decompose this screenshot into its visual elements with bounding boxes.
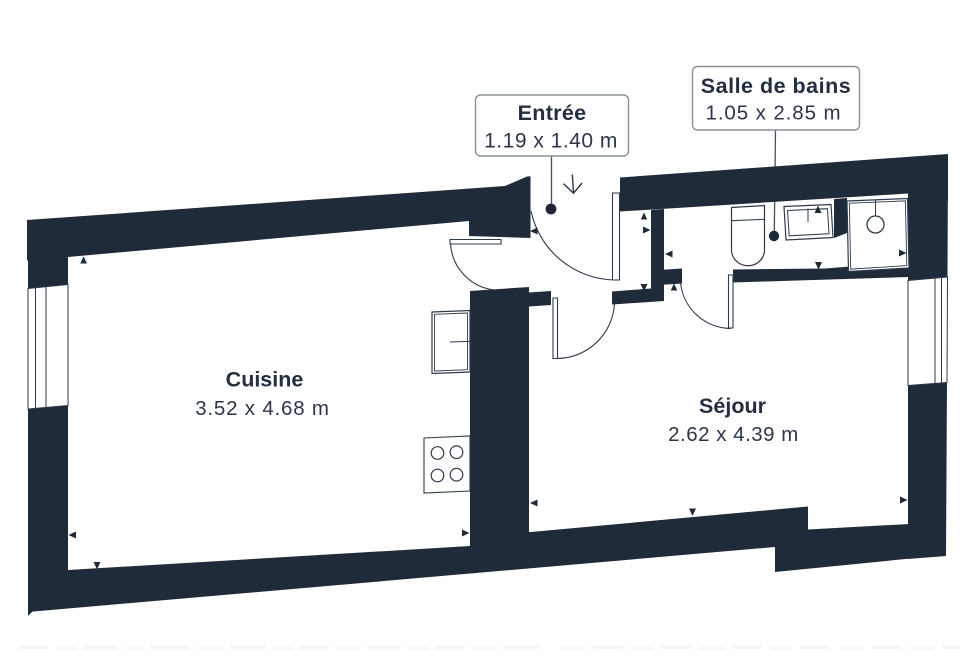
svg-text:Cuisine: Cuisine [226,368,304,392]
svg-text:Séjour: Séjour [699,394,767,418]
svg-text:2.62 x 4.39 m: 2.62 x 4.39 m [668,423,799,446]
svg-text:1.19 x 1.40 m: 1.19 x 1.40 m [484,130,618,153]
svg-text:Entrée: Entrée [518,101,587,125]
svg-text:3.52 x 4.68 m: 3.52 x 4.68 m [195,397,330,420]
svg-text:1.05 x 2.85 m: 1.05 x 2.85 m [706,102,842,125]
svg-text:Salle de bains: Salle de bains [701,74,851,98]
